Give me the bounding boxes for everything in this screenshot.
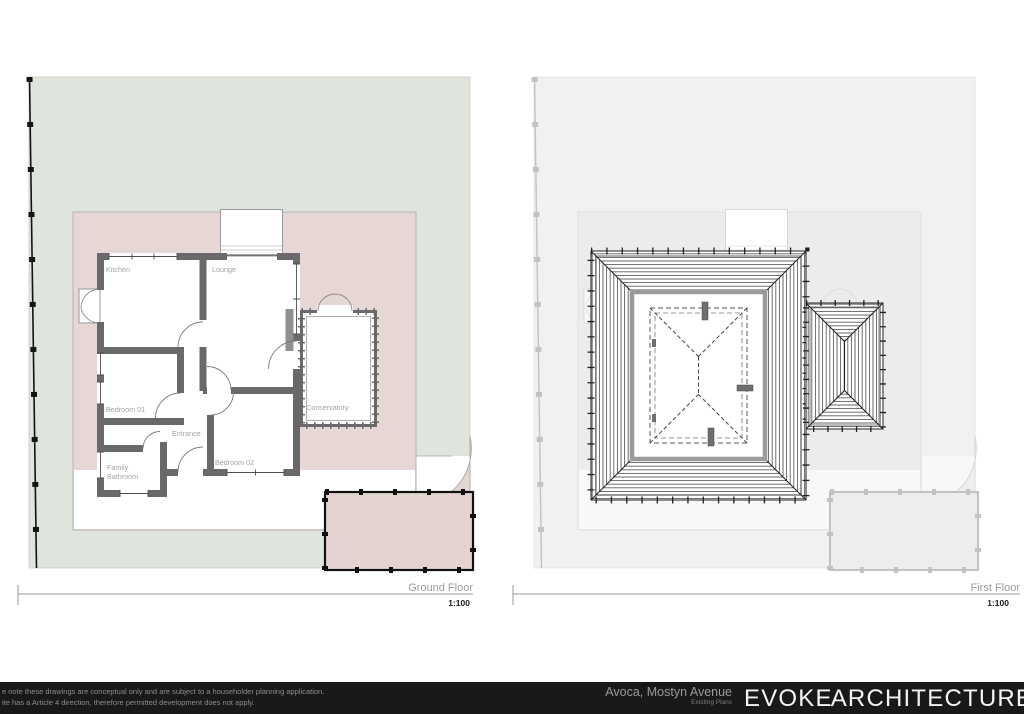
footer-note-line1: e note these drawings are conceptual onl…: [2, 686, 324, 697]
ground-floor-plan: Kitchen Lounge Bedroom 01 Entrance Bedro…: [18, 77, 473, 608]
footer-bar: e note these drawings are conceptual onl…: [0, 682, 1024, 714]
drawing-set-label: Existing Plans: [605, 699, 732, 707]
roof-flat-area: [632, 292, 765, 459]
room-label-lounge: Lounge: [212, 265, 236, 274]
room-label-bathroom-1: Family: [107, 463, 129, 472]
porch: [221, 210, 283, 257]
roof-slope-east: [765, 251, 806, 500]
ground-floor-titleblock: Ground Floor 1:100: [18, 582, 473, 608]
evoke-architecture-logo: EVOKEARCHITECTURE: [744, 685, 1024, 713]
vent-1: [652, 339, 656, 347]
ground-floor-title: Ground Floor: [408, 582, 473, 594]
fireplace: [286, 309, 294, 351]
project-name: Avoca, Mostyn Avenue: [605, 685, 732, 699]
room-label-bedroom01: Bedroom 01: [106, 405, 145, 414]
logo-evoke: EVOKE: [744, 685, 833, 712]
ground-floor-scale: 1:100: [448, 598, 470, 608]
room-label-kitchen: Kitchen: [106, 265, 130, 274]
first-floor-titleblock: First Floor 1:100: [513, 582, 1020, 608]
first-floor-title: First Floor: [971, 582, 1021, 594]
room-label-bathroom-2: Bathroom: [107, 472, 138, 481]
room-label-conservatory: Conservatory: [306, 403, 349, 412]
room-label-entrance: Entrance: [172, 429, 201, 438]
chimney-south: [708, 428, 714, 446]
footer-note: e note these drawings are conceptual onl…: [2, 686, 324, 708]
chimney-north: [702, 302, 708, 320]
project-block: Avoca, Mostyn Avenue Existing Plans: [605, 685, 732, 707]
french-door-opening: [317, 305, 353, 316]
logo-architecture: ARCHITECTURE: [831, 685, 1024, 712]
first-floor-scale: 1:100: [987, 598, 1009, 608]
house-footprint: [97, 253, 300, 497]
room-label-bedroom02: Bedroom 02: [215, 458, 254, 467]
neighbour-building: [325, 492, 473, 570]
neighbour-building-faint: [830, 492, 978, 570]
porch-faint: [726, 210, 788, 257]
first-floor-plan: First Floor 1:100: [513, 77, 1020, 608]
footer-note-line2: ite has a Article 4 direction, therefore…: [2, 697, 324, 708]
main-roof: [591, 251, 806, 500]
plans-canvas: Kitchen Lounge Bedroom 01 Entrance Bedro…: [0, 0, 1024, 714]
vent-2: [652, 414, 656, 422]
chimney-east: [737, 385, 753, 391]
conservatory-roof: [806, 303, 883, 429]
roof-slope-west: [591, 251, 632, 500]
drawing-sheet: Kitchen Lounge Bedroom 01 Entrance Bedro…: [0, 0, 1024, 714]
side-door: [79, 289, 100, 323]
